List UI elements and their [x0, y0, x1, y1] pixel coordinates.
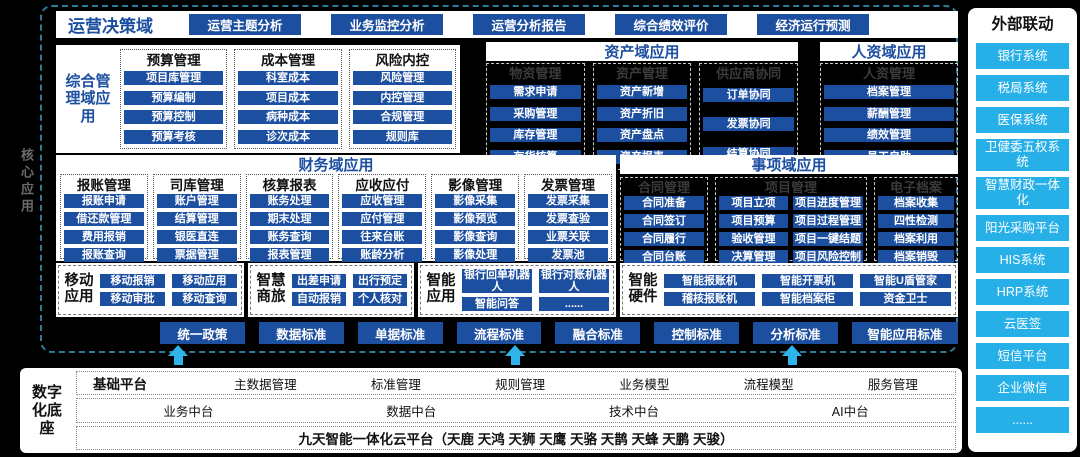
module-button-list: 影像采集影像预览影像查询影像处理 — [435, 194, 515, 256]
module-button: 需求申请 — [490, 85, 581, 99]
module-group-header: 报账管理 — [64, 177, 144, 194]
decision-domain-bar: 运营决策域 运营主题分析业务监控分析运营分析报告综合绩效评价经济运行预测 — [56, 11, 958, 38]
module-group: 人资管理档案管理薪酬管理绩效管理员工自助 — [820, 63, 958, 170]
module-button: 智能U盾管家 — [860, 274, 951, 288]
module-button: 发票采集 — [528, 194, 608, 208]
standard-button: 智能应用标准 — [852, 322, 958, 344]
bottom-app-inner: 智慧商旅出差申请出行预定自动报销个人核对 — [250, 265, 412, 315]
external-system-button: 智慧财政一体化 — [976, 177, 1069, 209]
module-button-list: 项目进度管理项目过程管理项目一键结题项目风险控制 — [793, 196, 863, 264]
module-group-header: 司库管理 — [157, 177, 237, 194]
module-group-header: 人资管理 — [824, 66, 954, 82]
external-systems-sidebar: 外部联动 银行系统税局系统医保系统卫健委五权系统智慧财政一体化阳光采购平台HIS… — [968, 8, 1077, 452]
module-group-header: 供应商协同 — [703, 66, 794, 82]
up-arrow-icon — [505, 345, 525, 365]
module-button: 发票协同 — [703, 117, 794, 131]
external-system-button: 阳光采购平台 — [976, 215, 1069, 241]
platform-item: 流程模型 — [744, 374, 794, 393]
foundation-middleware-row: 业务中台数据中台技术中台AI中台 — [76, 398, 956, 422]
module-button: 诊次成本 — [238, 130, 337, 144]
module-button: 项目进度管理 — [793, 196, 863, 210]
module-button-list: 项目立项项目预算验收管理决算管理 — [719, 196, 788, 264]
module-group: 司库管理账户管理结算管理银医直连票据管理 — [153, 174, 241, 259]
module-button: 发票池 — [528, 248, 608, 262]
digital-foundation-panel: 数字化底座 基础平台 主数据管理标准管理规则管理业务模型流程模型服务管理 业务中… — [20, 368, 962, 453]
module-group: 核算报表账务处理期末处理账务查询报表管理 — [246, 174, 334, 259]
module-button: 出差申请 — [292, 274, 346, 288]
external-system-button: ...... — [976, 407, 1069, 433]
module-button: 档案利用 — [878, 232, 954, 246]
module-button: 银医直连 — [157, 230, 237, 244]
module-group-header: 合同管理 — [624, 180, 704, 196]
module-group: 预算管理项目库管理预算编制预算控制预算考核 — [120, 49, 227, 149]
decision-domain-buttons: 运营主题分析业务监控分析运营分析报告综合绩效评价经济运行预测 — [189, 14, 869, 35]
bottom-app-label: 智能应用 — [425, 274, 457, 306]
external-system-button: 卫健委五权系统 — [976, 139, 1069, 171]
bottom-app-inner: 智能应用银行回单机器人银行对账机器人智能问答...... — [420, 265, 614, 315]
module-button: 影像预览 — [435, 212, 515, 226]
module-button: 病种成本 — [238, 110, 337, 124]
finance-domain-panel: 财务域应用 报账管理报账申请借还款管理费用报销报账查询司库管理账户管理结算管理银… — [56, 155, 616, 261]
bottom-app-row: 出差申请出行预定 — [292, 274, 407, 288]
cloud-platform-row: 九天智能一体化云平台（天鹿 天鸿 天狮 天鹰 天骆 天鹊 天蜂 天鹏 天骏） — [76, 426, 956, 450]
middleware-item: AI中台 — [832, 401, 869, 420]
external-system-button: 银行系统 — [976, 43, 1069, 69]
module-button-list: 风险管理内控管理合规管理规则库 — [353, 69, 452, 146]
module-button: 账龄分析 — [342, 248, 422, 262]
comprehensive-columns: 预算管理项目库管理预算编制预算控制预算考核成本管理科室成本项目成本病种成本诊次成… — [120, 49, 456, 149]
core-vertical-label: 核心应用 — [17, 148, 36, 216]
module-button: 合同台账 — [624, 250, 704, 264]
foundation-basic-platform-row: 基础平台 主数据管理标准管理规则管理业务模型流程模型服务管理 — [76, 371, 956, 395]
module-group-header: 物资管理 — [490, 66, 581, 82]
module-button: 发票查验 — [528, 212, 608, 226]
module-button: 四性检测 — [878, 214, 954, 228]
middleware-item: 业务中台 — [163, 401, 213, 420]
middleware-item: 数据中台 — [386, 401, 436, 420]
module-button: 报账申请 — [64, 194, 144, 208]
module-button-list: 档案收集四性检测档案利用档案销毁 — [878, 196, 954, 264]
bottom-app-row: 稽核报账机智能档案柜资金卫士 — [664, 292, 951, 306]
module-button: 项目风险控制 — [793, 250, 863, 264]
foundation-rows: 基础平台 主数据管理标准管理规则管理业务模型流程模型服务管理 业务中台数据中台技… — [76, 371, 956, 450]
module-button: 智能开票机 — [762, 274, 853, 288]
bottom-app-row: 移动审批移动查询 — [100, 292, 237, 306]
module-button: 合同准备 — [624, 196, 704, 210]
module-button: 项目预算 — [719, 214, 788, 228]
module-button: 借还款管理 — [64, 212, 144, 226]
external-system-button: 税局系统 — [976, 75, 1069, 101]
module-button: 资金卫士 — [860, 292, 951, 306]
hr-domain-title: 人资域应用 — [820, 42, 958, 61]
module-button: 库存管理 — [490, 128, 581, 142]
module-button: ...... — [539, 297, 609, 311]
analysis-button: 运营分析报告 — [473, 14, 585, 35]
module-button: 智能档案柜 — [762, 292, 853, 306]
module-button: 资产盘点 — [597, 128, 688, 142]
external-system-button: 短信平台 — [976, 343, 1069, 369]
bottom-app-row: 移动报销移动应用 — [100, 274, 237, 288]
finance-domain-title: 财务域应用 — [60, 157, 612, 174]
module-button: 移动应用 — [172, 274, 237, 288]
bottom-app-row: 银行回单机器人银行对账机器人 — [462, 269, 609, 293]
external-system-list: 银行系统税局系统医保系统卫健委五权系统智慧财政一体化阳光采购平台HIS系统HRP… — [976, 43, 1069, 433]
external-system-button: HIS系统 — [976, 247, 1069, 273]
module-group-header: 成本管理 — [238, 52, 337, 69]
module-button: 期末处理 — [250, 212, 330, 226]
module-button: 订单协同 — [703, 88, 794, 102]
module-button: 移动报销 — [100, 274, 165, 288]
bottom-app-grid: 智能报账机智能开票机智能U盾管家稽核报账机智能档案柜资金卫士 — [664, 274, 951, 306]
hr-groups: 人资管理档案管理薪酬管理绩效管理员工自助 — [820, 63, 958, 170]
bottom-app-grid: 出差申请出行预定自动报销个人核对 — [292, 274, 407, 306]
analysis-button: 运营主题分析 — [189, 14, 301, 35]
analysis-button: 经济运行预测 — [757, 14, 869, 35]
module-button: 预算考核 — [124, 130, 223, 144]
module-button: 项目库管理 — [124, 71, 223, 85]
module-group: 物资管理需求申请采购管理库存管理存货核算 — [486, 63, 585, 170]
module-group: 发票管理发票采集发票查验业票关联发票池 — [524, 174, 612, 259]
module-group-header: 项目管理 — [719, 180, 863, 196]
bottom-app-label: 移动应用 — [63, 274, 95, 306]
decision-domain-title: 运营决策域 — [68, 12, 153, 37]
matter-domain-title: 事项域应用 — [620, 155, 958, 174]
matter-group: 项目管理项目立项项目预算验收管理决算管理项目进度管理项目过程管理项目一键结题项目… — [715, 177, 867, 261]
bottom-app-inner: 移动应用移动报销移动应用移动审批移动查询 — [58, 265, 242, 315]
module-group-header: 发票管理 — [528, 177, 608, 194]
bottom-app-row: 自动报销个人核对 — [292, 292, 407, 306]
module-button: 薪酬管理 — [824, 107, 954, 121]
middleware-items: 业务中台数据中台技术中台AI中台 — [77, 401, 955, 420]
module-button: 资产折旧 — [597, 107, 688, 121]
architecture-diagram: 核心应用 运营决策域 运营主题分析业务监控分析运营分析报告综合绩效评价经济运行预… — [0, 0, 1080, 457]
platform-item: 规则管理 — [495, 374, 545, 393]
analysis-button: 综合绩效评价 — [615, 14, 727, 35]
basic-platform-items: 主数据管理标准管理规则管理业务模型流程模型服务管理 — [197, 374, 955, 393]
module-button: 应收管理 — [342, 194, 422, 208]
matter-domain-section: 事项域应用 合同管理合同准备合同签订合同履行合同台账项目管理项目立项项目预算验收… — [620, 155, 958, 261]
module-button: 业票关联 — [528, 230, 608, 244]
module-group: 成本管理科室成本项目成本病种成本诊次成本 — [234, 49, 341, 149]
module-button: 采购管理 — [490, 107, 581, 121]
module-group-header: 资产管理 — [597, 66, 688, 82]
module-button: 内控管理 — [353, 91, 452, 105]
module-button: 报账查询 — [64, 248, 144, 262]
module-button: 项目一键结题 — [793, 232, 863, 246]
module-button: 银行对账机器人 — [539, 269, 609, 293]
bottom-app-row: 智能报账机智能开票机智能U盾管家 — [664, 274, 951, 288]
module-button: 影像查询 — [435, 230, 515, 244]
finance-columns: 报账管理报账申请借还款管理费用报销报账查询司库管理账户管理结算管理银医直连票据管… — [60, 174, 612, 259]
bottom-app-grid: 移动报销移动应用移动审批移动查询 — [100, 274, 237, 306]
analysis-button: 业务监控分析 — [331, 14, 443, 35]
module-group: 资产管理资产新增资产折旧资产盘点资产报表 — [593, 63, 692, 170]
module-button: 账务查询 — [250, 230, 330, 244]
module-group-header: 核算报表 — [250, 177, 330, 194]
platform-item: 主数据管理 — [234, 374, 297, 393]
bottom-app-grid: 银行回单机器人银行对账机器人智能问答...... — [462, 269, 609, 311]
bottom-app-inner: 智能硬件智能报账机智能开票机智能U盾管家稽核报账机智能档案柜资金卫士 — [622, 265, 956, 315]
module-button: 智能报账机 — [664, 274, 755, 288]
external-system-button: HRP系统 — [976, 279, 1069, 305]
external-system-button: 医保系统 — [976, 107, 1069, 133]
bottom-app-panel: 智慧商旅出差申请出行预定自动报销个人核对 — [248, 263, 414, 317]
platform-item: 服务管理 — [868, 374, 918, 393]
platform-item: 业务模型 — [619, 374, 669, 393]
module-button: 项目成本 — [238, 91, 337, 105]
matter-subcolumns: 项目立项项目预算验收管理决算管理项目进度管理项目过程管理项目一键结题项目风险控制 — [719, 196, 863, 264]
module-button-list: 合同准备合同签订合同履行合同台账 — [624, 196, 704, 264]
standard-button: 统一政策 — [160, 322, 245, 344]
module-button-list: 账户管理结算管理银医直连票据管理 — [157, 194, 237, 256]
module-button: 账务处理 — [250, 194, 330, 208]
bottom-app-label: 智能硬件 — [627, 274, 659, 306]
external-system-button: 云医签 — [976, 311, 1069, 337]
module-button: 影像采集 — [435, 194, 515, 208]
module-button-list: 账务处理期末处理账务查询报表管理 — [250, 194, 330, 256]
module-button: 稽核报账机 — [664, 292, 755, 306]
module-button: 往来台账 — [342, 230, 422, 244]
module-button: 银行回单机器人 — [462, 269, 532, 293]
comprehensive-domain-panel: 综合管理域应用 预算管理项目库管理预算编制预算控制预算考核成本管理科室成本项目成… — [56, 45, 460, 153]
external-system-button: 企业微信 — [976, 375, 1069, 401]
module-button-list: 科室成本项目成本病种成本诊次成本 — [238, 69, 337, 146]
platform-item: 标准管理 — [371, 374, 421, 393]
standard-button: 控制标准 — [654, 322, 739, 344]
up-arrow-icon — [168, 345, 188, 365]
module-button-list: 报账申请借还款管理费用报销报账查询 — [64, 194, 144, 256]
module-button: 预算编制 — [124, 91, 223, 105]
module-group-header: 风险内控 — [353, 52, 452, 69]
module-button-list: 应收管理应付管理往来台账账龄分析 — [342, 194, 422, 256]
module-group: 风险内控风险管理内控管理合规管理规则库 — [349, 49, 456, 149]
middleware-item: 技术中台 — [609, 401, 659, 420]
module-group-header: 电子档案 — [878, 180, 954, 196]
matter-group: 电子档案档案收集四性检测档案利用档案销毁 — [874, 177, 958, 261]
module-button: 移动审批 — [100, 292, 165, 306]
bottom-app-panel: 移动应用移动报销移动应用移动审批移动查询 — [56, 263, 244, 317]
module-group-header: 影像管理 — [435, 177, 515, 194]
digital-foundation-title: 数字化底座 — [26, 371, 68, 450]
standard-button: 融合标准 — [555, 322, 640, 344]
module-group-header: 应收应付 — [342, 177, 422, 194]
module-group: 影像管理影像采集影像预览影像查询影像处理 — [431, 174, 519, 259]
module-button: 出行预定 — [353, 274, 407, 288]
module-button: 决算管理 — [719, 250, 788, 264]
bottom-app-panel: 智能应用银行回单机器人银行对账机器人智能问答...... — [418, 263, 616, 317]
module-button: 项目过程管理 — [793, 214, 863, 228]
module-button: 账户管理 — [157, 194, 237, 208]
module-button: 规则库 — [353, 130, 452, 144]
module-button: 应付管理 — [342, 212, 422, 226]
module-button: 项目立项 — [719, 196, 788, 210]
matter-group: 合同管理合同准备合同签订合同履行合同台账 — [620, 177, 708, 261]
module-group: 报账管理报账申请借还款管理费用报销报账查询 — [60, 174, 148, 259]
up-arrow-icon — [782, 345, 802, 365]
standard-button: 数据标准 — [259, 322, 344, 344]
module-button: 票据管理 — [157, 248, 237, 262]
module-button: 科室成本 — [238, 71, 337, 85]
module-button: 风险管理 — [353, 71, 452, 85]
module-button: 智能问答 — [462, 297, 532, 311]
module-button: 预算控制 — [124, 110, 223, 124]
module-button: 资产新增 — [597, 85, 688, 99]
module-button: 档案收集 — [878, 196, 954, 210]
module-button: 费用报销 — [64, 230, 144, 244]
comprehensive-domain-title: 综合管理域应用 — [60, 49, 116, 149]
module-button: 影像处理 — [435, 248, 515, 262]
module-button: 报表管理 — [250, 248, 330, 262]
module-button: 档案管理 — [824, 85, 954, 99]
module-button: 验收管理 — [719, 232, 788, 246]
standard-button: 单据标准 — [358, 322, 443, 344]
module-button: 移动查询 — [172, 292, 237, 306]
matter-subcolumns: 合同准备合同签订合同履行合同台账 — [624, 196, 704, 264]
hr-domain-section: 人资域应用 人资管理档案管理薪酬管理绩效管理员工自助 — [820, 42, 958, 170]
bottom-app-label: 智慧商旅 — [255, 274, 287, 306]
module-button: 个人核对 — [353, 292, 407, 306]
module-button: 自动报销 — [292, 292, 346, 306]
module-button: 合同签订 — [624, 214, 704, 228]
module-button: 结算管理 — [157, 212, 237, 226]
module-button-list: 项目库管理预算编制预算控制预算考核 — [124, 69, 223, 146]
module-button: 档案销毁 — [878, 250, 954, 264]
standard-button: 分析标准 — [753, 322, 838, 344]
module-button-list: 发票采集发票查验业票关联发票池 — [528, 194, 608, 256]
module-group: 应收应付应收管理应付管理往来台账账龄分析 — [338, 174, 426, 259]
module-button: 合规管理 — [353, 110, 452, 124]
external-systems-title: 外部联动 — [991, 15, 1053, 35]
asset-domain-title: 资产域应用 — [486, 42, 798, 61]
asset-domain-section: 资产域应用 物资管理需求申请采购管理库存管理存货核算资产管理资产新增资产折旧资产… — [486, 42, 798, 170]
matter-groups: 合同管理合同准备合同签订合同履行合同台账项目管理项目立项项目预算验收管理决算管理… — [620, 177, 958, 261]
module-group-header: 预算管理 — [124, 52, 223, 69]
module-button: 绩效管理 — [824, 128, 954, 142]
basic-platform-label: 基础平台 — [77, 373, 197, 393]
matter-subcolumns: 档案收集四性检测档案利用档案销毁 — [878, 196, 954, 264]
standards-row: 统一政策数据标准单据标准流程标准融合标准控制标准分析标准智能应用标准 — [160, 322, 958, 344]
standard-button: 流程标准 — [457, 322, 542, 344]
module-button: 合同履行 — [624, 232, 704, 246]
bottom-app-panel: 智能硬件智能报账机智能开票机智能U盾管家稽核报账机智能档案柜资金卫士 — [620, 263, 958, 317]
bottom-app-row: 智能问答...... — [462, 297, 609, 311]
